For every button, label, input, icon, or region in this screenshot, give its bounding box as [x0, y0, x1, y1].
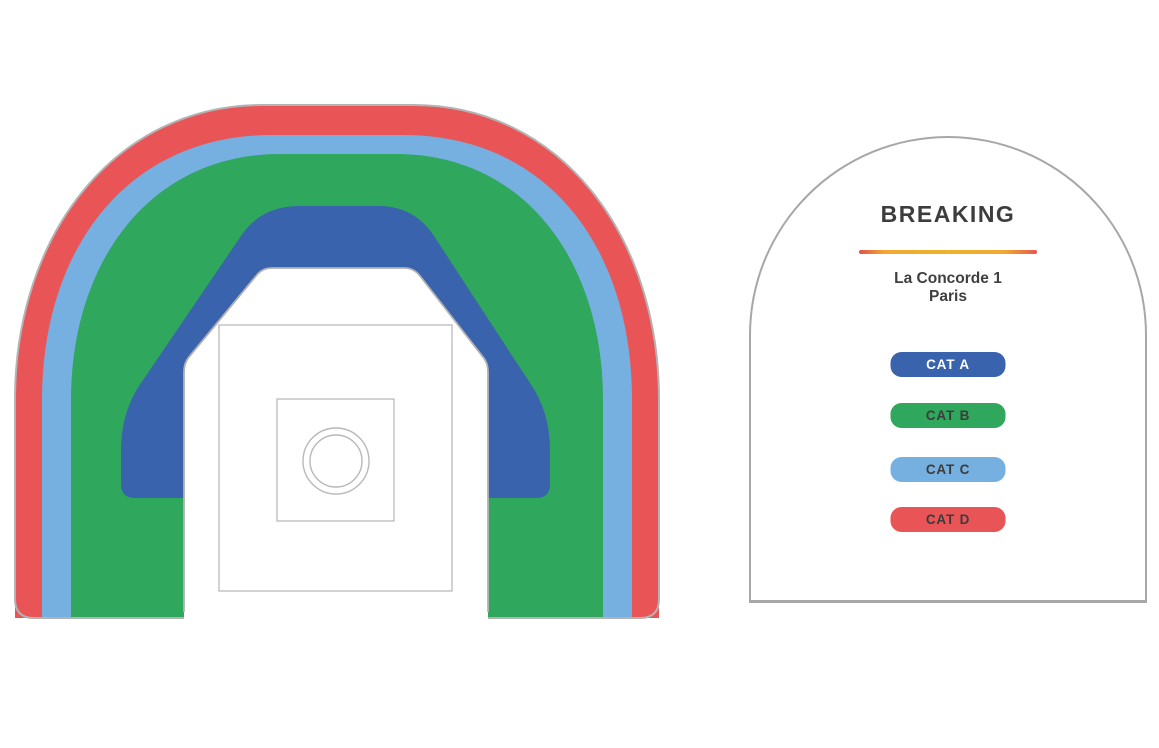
legend-cat-d-button[interactable]: CAT D: [891, 507, 1006, 532]
stage-square: [277, 399, 394, 521]
seating-map-page: BREAKING La Concorde 1 Paris CAT A CAT B…: [0, 0, 1159, 748]
event-title: BREAKING: [751, 201, 1145, 228]
arena-map: [0, 0, 690, 660]
legend-cat-b-button[interactable]: CAT B: [891, 403, 1006, 428]
legend-cat-a-button[interactable]: CAT A: [891, 352, 1006, 377]
legend-panel: BREAKING La Concorde 1 Paris CAT A CAT B…: [749, 136, 1147, 603]
venue-label: La Concorde 1 Paris: [751, 270, 1145, 306]
venue-city: Paris: [751, 288, 1145, 306]
venue-name: La Concorde 1: [751, 270, 1145, 288]
gradient-divider: [859, 250, 1037, 254]
legend-cat-c-button[interactable]: CAT C: [891, 457, 1006, 482]
